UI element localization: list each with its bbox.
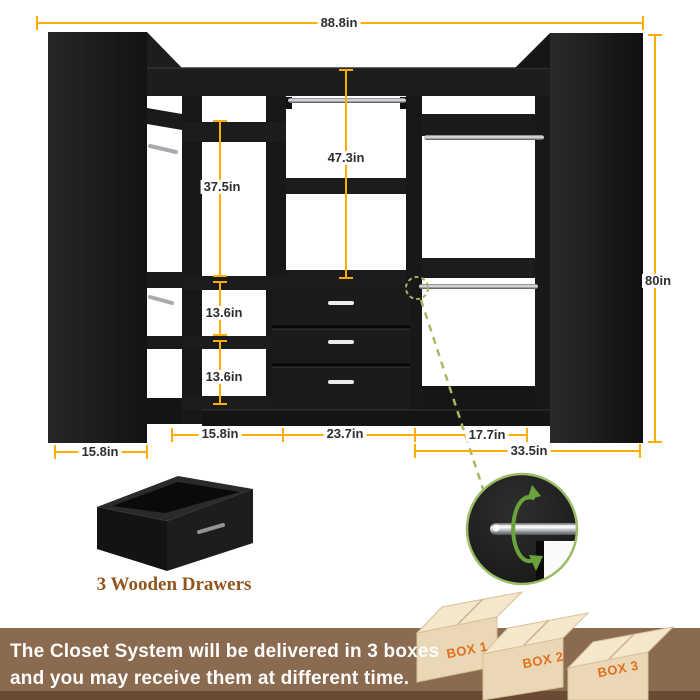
dim-center-tower-height: 47.3in xyxy=(325,151,368,165)
product-diagram: 88.8in 80in 47.3in 37.5in 13.6in 13.6in … xyxy=(0,0,700,700)
magnified-hanging-rod-icon xyxy=(490,523,584,535)
top-shelf-band xyxy=(147,68,550,96)
magnifier-detail xyxy=(455,462,590,597)
banner-text-line2: and you may receive them at different ti… xyxy=(10,668,409,690)
dim-right-tower-width: 17.7in xyxy=(466,428,509,442)
drawer-illustration xyxy=(97,476,253,571)
left-panel xyxy=(48,32,147,443)
dim-left-tower-width: 15.8in xyxy=(199,427,242,441)
corner-hanging-rod-icon xyxy=(150,146,176,152)
right-lower-hanging-rod-icon xyxy=(419,284,538,289)
dim-left-tower-height: 37.5in xyxy=(201,180,244,194)
dim-left-unit-depth: 15.8in xyxy=(79,445,122,459)
banner-text-line1: The Closet System will be delivered in 3… xyxy=(10,641,439,663)
drawer-handle-icon xyxy=(328,301,354,305)
dim-lower-cubby-height: 13.6in xyxy=(203,370,246,384)
dim-overall-height: 80in xyxy=(642,274,674,288)
drawer-caption: 3 Wooden Drawers xyxy=(97,574,252,596)
dim-upper-cubby-height: 13.6in xyxy=(203,306,246,320)
dim-right-unit-width: 33.5in xyxy=(508,444,551,458)
drawer-handle-icon xyxy=(328,340,354,344)
drawer-stack xyxy=(272,288,410,410)
dim-center-tower-width: 23.7in xyxy=(324,427,367,441)
drawer-handle-icon xyxy=(328,380,354,384)
right-panel xyxy=(550,33,643,443)
right-upper-hanging-rod-icon xyxy=(424,135,544,140)
dim-overall-width: 88.8in xyxy=(318,16,361,30)
